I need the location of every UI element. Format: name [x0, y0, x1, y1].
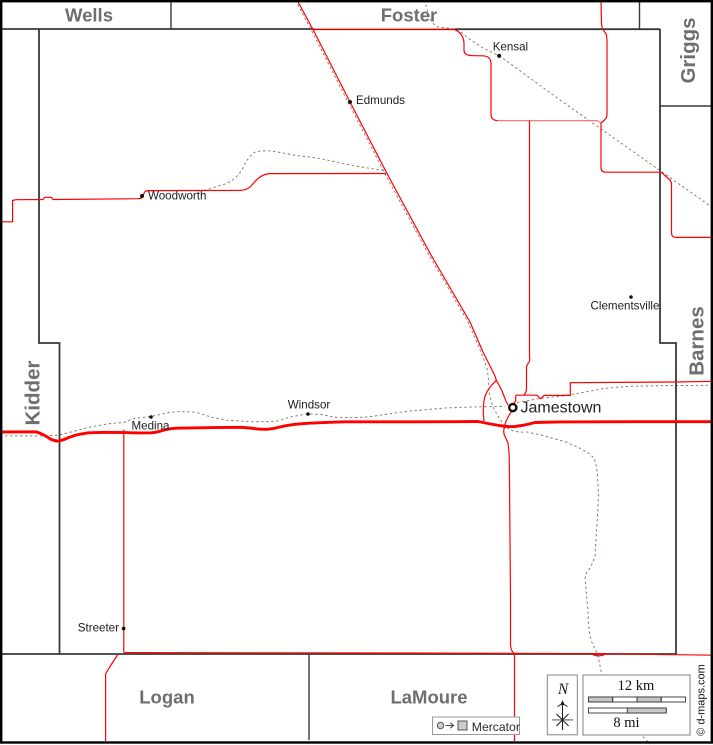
svg-text:Wells: Wells: [65, 5, 113, 26]
svg-text:Jamestown: Jamestown: [521, 400, 602, 417]
svg-text:N: N: [557, 681, 570, 698]
svg-text:© d-maps.com: © d-maps.com: [696, 664, 708, 736]
svg-text:Kensal: Kensal: [493, 40, 528, 53]
svg-text:Barnes: Barnes: [686, 306, 709, 376]
svg-text:12 km: 12 km: [618, 678, 655, 694]
svg-text:Logan: Logan: [139, 687, 195, 708]
svg-text:Griggs: Griggs: [677, 17, 700, 83]
svg-text:8 mi: 8 mi: [613, 715, 639, 731]
svg-text:LaMoure: LaMoure: [390, 687, 467, 708]
svg-text:Kidder: Kidder: [22, 361, 45, 426]
svg-text:Windsor: Windsor: [288, 399, 331, 412]
svg-text:Woodworth: Woodworth: [148, 190, 206, 203]
svg-text:Medina: Medina: [131, 419, 170, 432]
svg-text:Streeter: Streeter: [78, 622, 119, 635]
svg-text:Mercator: Mercator: [472, 720, 520, 734]
svg-text:Edmunds: Edmunds: [356, 94, 405, 107]
svg-text:Clementsville: Clementsville: [591, 300, 660, 313]
svg-text:Foster: Foster: [381, 5, 438, 26]
